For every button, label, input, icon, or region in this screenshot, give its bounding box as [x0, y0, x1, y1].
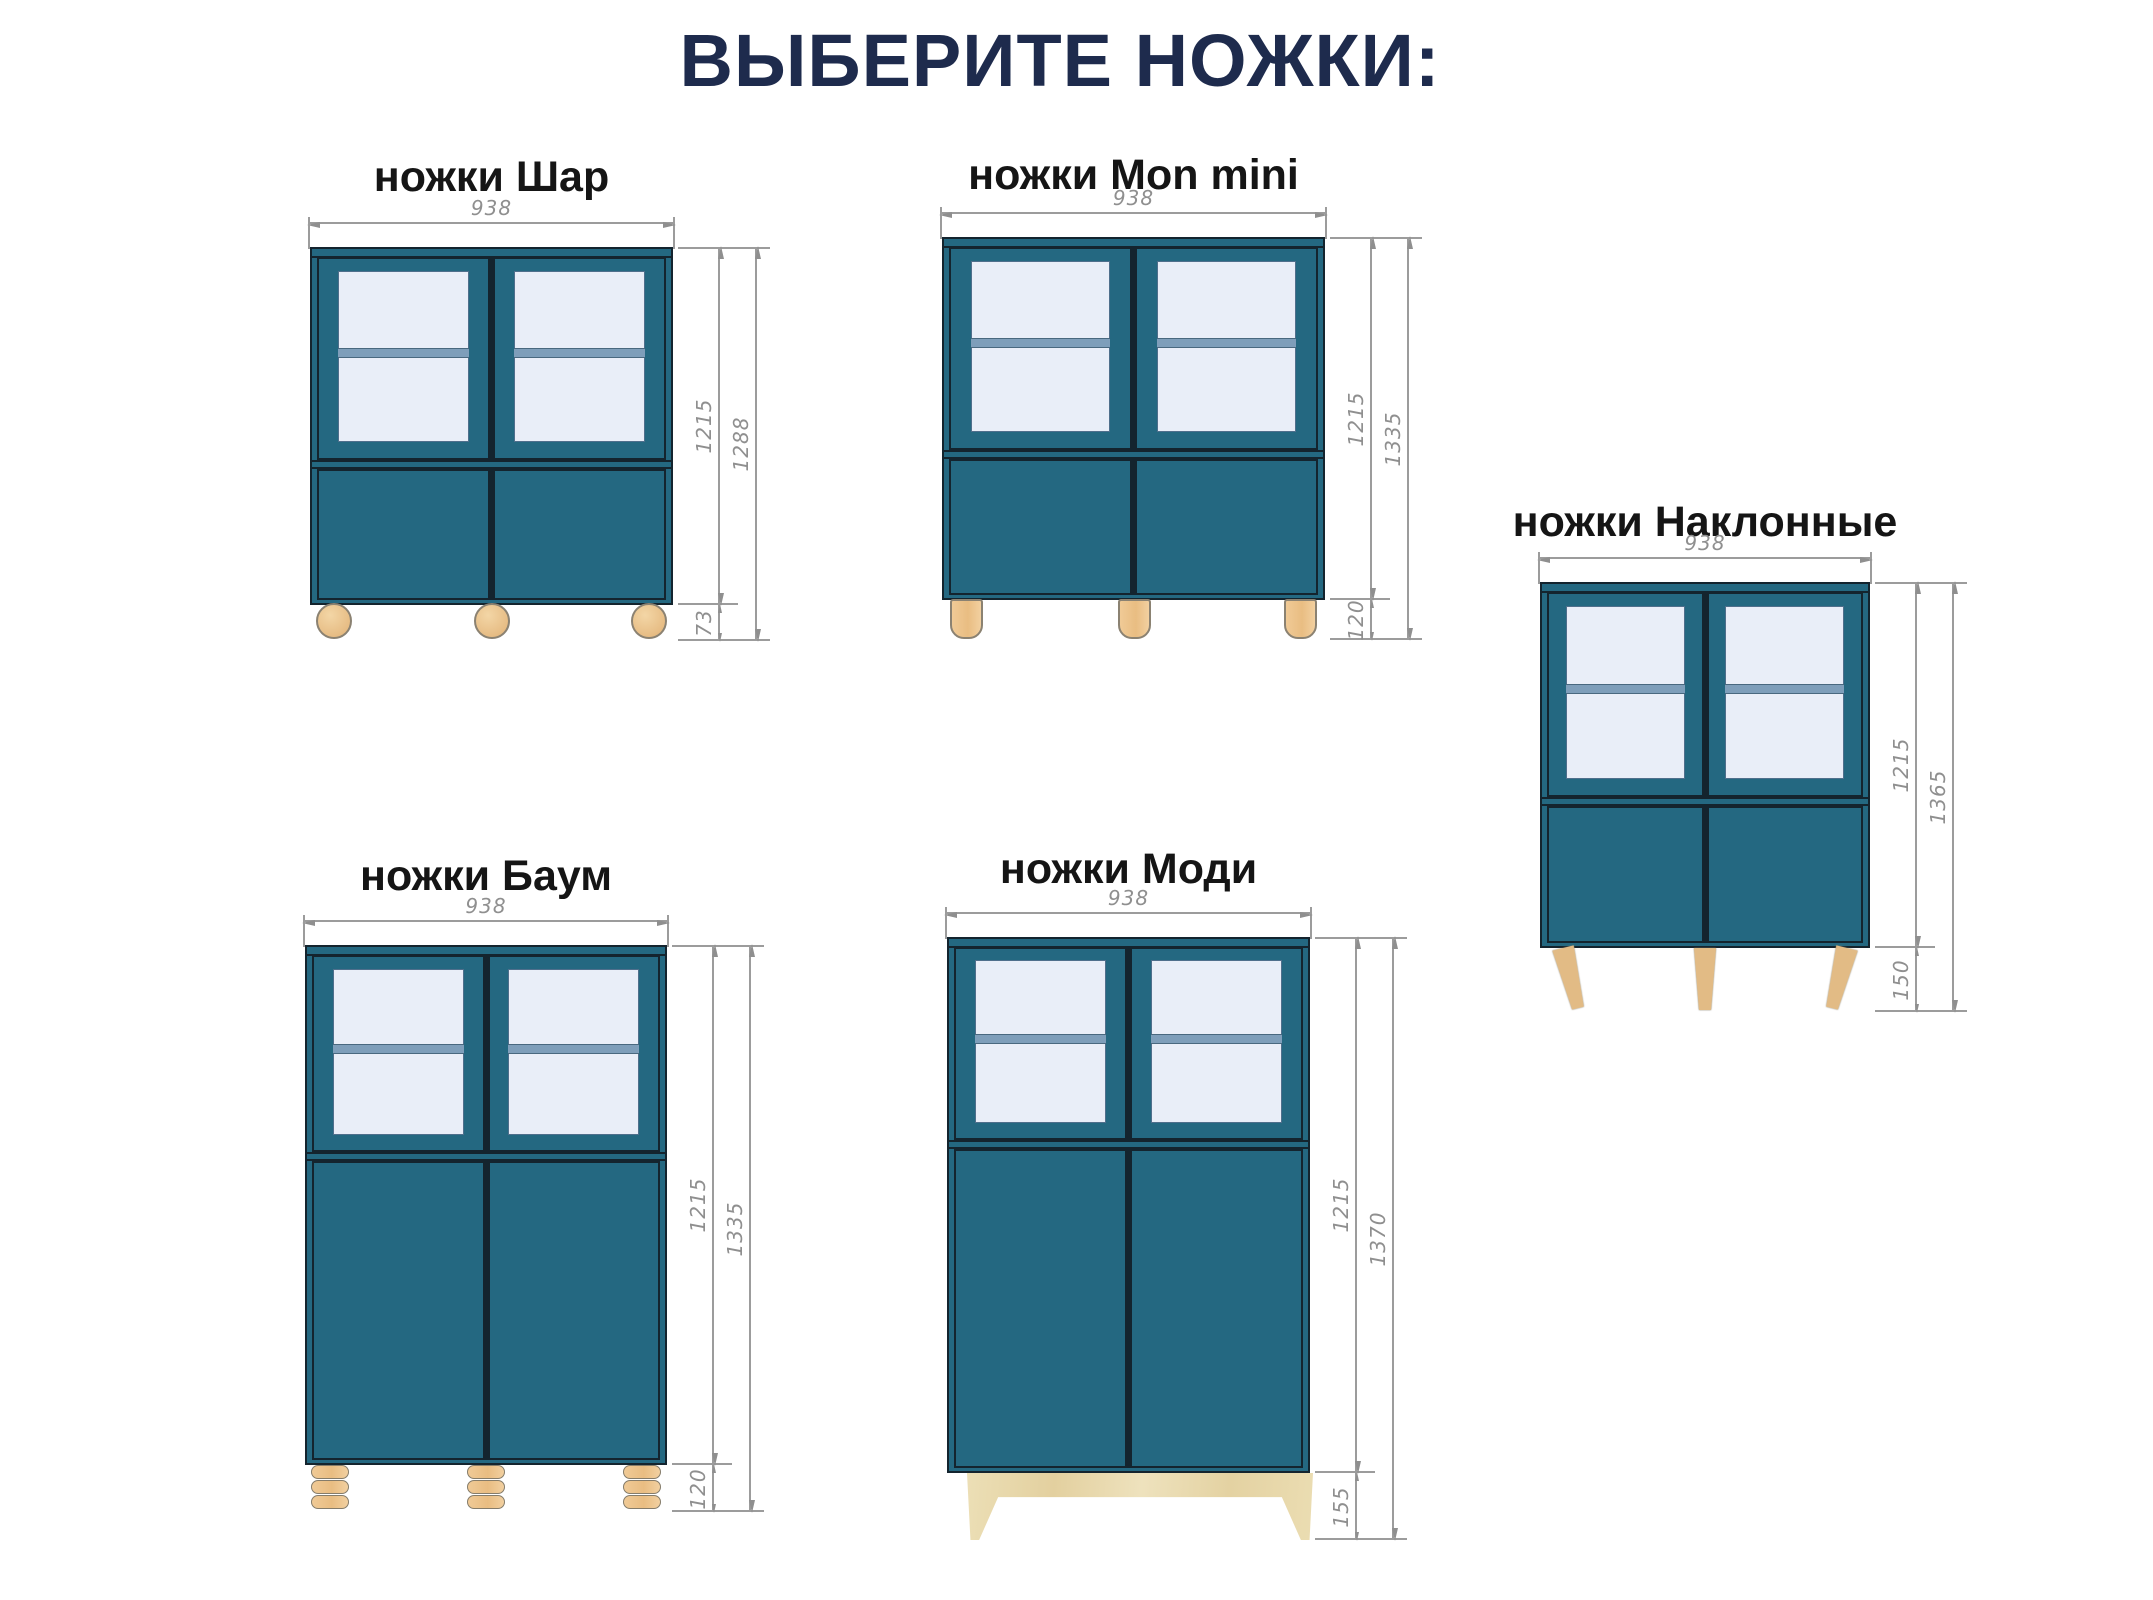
ball-leg [631, 603, 667, 639]
shelf-line [508, 1044, 639, 1054]
extension-line [1315, 1471, 1375, 1473]
glass-door-section [317, 257, 666, 460]
total-height-dimension: 1335 [749, 945, 751, 1512]
glass-door-right [1707, 592, 1864, 797]
legs-plinth [947, 1473, 1310, 1540]
body-height-dimension: 1215 [1915, 582, 1917, 948]
extension-line [1325, 207, 1327, 239]
page-title: ВЫБЕРИТЕ НОЖКИ: [0, 18, 2120, 103]
glass-door-section [949, 247, 1318, 450]
solid-door-section [954, 1149, 1303, 1468]
width-value: 938 [1108, 886, 1149, 910]
glass-pane [1725, 606, 1844, 779]
variant-panel-modi[interactable]: ножки Моди 938 1215 1370 155 [947, 937, 1310, 1473]
shelf-line [1151, 1034, 1283, 1044]
width-value: 938 [1113, 186, 1154, 210]
width-value: 938 [471, 196, 512, 220]
solid-door-left [317, 469, 490, 600]
solid-door-section [949, 459, 1318, 595]
glass-door-section [954, 947, 1303, 1140]
leg-height-dimension: 150 [1915, 948, 1917, 1012]
shelf-line [1157, 338, 1297, 348]
body-height-dimension: 1215 [712, 945, 714, 1465]
shelf-line [514, 348, 646, 358]
glass-door-right [1135, 247, 1318, 450]
width-dimension: 938 [1538, 557, 1872, 559]
solid-door-section [312, 1161, 660, 1460]
shelf-line [1566, 684, 1685, 694]
extension-line [303, 915, 305, 947]
glass-door-right [493, 257, 666, 460]
extension-line [940, 207, 942, 239]
extension-line [1310, 907, 1312, 939]
shelf-line [975, 1034, 1107, 1044]
width-value: 938 [465, 894, 506, 918]
cabinet-graphic [942, 237, 1325, 600]
solid-door-left [1547, 806, 1704, 943]
middle-divider [944, 450, 1323, 459]
glass-door-section [312, 955, 660, 1152]
total-height-dimension: 1288 [755, 247, 757, 641]
glass-pane [514, 271, 646, 443]
legs-ball [310, 605, 673, 641]
variant-label: ножки Шар [374, 153, 609, 202]
middle-divider [1542, 797, 1868, 806]
cabinet-graphic [1540, 582, 1870, 948]
extension-line [673, 217, 675, 249]
leg-height-dimension: 155 [1355, 1473, 1357, 1540]
cylinder-leg [1284, 599, 1317, 639]
middle-divider [307, 1152, 665, 1161]
variant-panel-baum[interactable]: ножки Баум 938 1215 1335 120 [305, 945, 667, 1465]
stacked-disc-leg [311, 1465, 349, 1509]
cabinet-graphic [305, 945, 667, 1465]
leg-height-dimension: 120 [712, 1465, 714, 1512]
glass-pane [975, 960, 1107, 1123]
leg-height-dimension: 120 [1370, 600, 1372, 640]
solid-door-right [1135, 459, 1318, 595]
glass-pane [333, 969, 464, 1135]
cylinder-leg [950, 599, 983, 639]
extension-line [672, 1463, 732, 1465]
extension-line [667, 915, 669, 947]
legs-slanted [1540, 948, 1870, 1012]
solid-door-right [1130, 1149, 1303, 1468]
leg-height-dimension: 73 [718, 605, 720, 641]
body-height-dimension: 1215 [1370, 237, 1372, 600]
solid-door-right [1707, 806, 1864, 943]
shelf-line [333, 1044, 464, 1054]
glass-door-section [1547, 592, 1863, 797]
variant-panel-mon-mini[interactable]: ножки Mon mini 938 1215 1335 120 [942, 237, 1325, 600]
cylinder-leg [1118, 599, 1151, 639]
glass-pane [1151, 960, 1283, 1123]
legs-stacked-discs [305, 1465, 667, 1512]
cabinet-graphic [947, 937, 1310, 1473]
solid-door-left [312, 1161, 485, 1460]
glass-door-left [312, 955, 485, 1152]
solid-door-right [488, 1161, 661, 1460]
slanted-leg [1694, 948, 1716, 1010]
cabinet-graphic [310, 247, 673, 605]
middle-divider [949, 1140, 1308, 1149]
glass-door-left [317, 257, 490, 460]
solid-door-right [493, 469, 666, 600]
solid-door-section [317, 469, 666, 600]
ball-leg [474, 603, 510, 639]
width-dimension: 938 [308, 222, 675, 224]
glass-pane [1157, 261, 1297, 432]
extension-line [945, 907, 947, 939]
extension-line [1870, 552, 1872, 584]
glass-door-left [954, 947, 1127, 1140]
slanted-leg [1552, 945, 1588, 1010]
shelf-line [1725, 684, 1844, 694]
extension-line [678, 603, 738, 605]
glass-pane [508, 969, 639, 1135]
ball-leg [316, 603, 352, 639]
width-dimension: 938 [940, 212, 1327, 214]
glass-pane [971, 261, 1111, 432]
solid-door-left [949, 459, 1132, 595]
variant-panel-naklonnye[interactable]: ножки Наклонные 938 1215 1365 150 [1540, 582, 1870, 948]
solid-door-left [954, 1149, 1127, 1468]
solid-door-section [1547, 806, 1863, 943]
width-dimension: 938 [945, 912, 1312, 914]
extension-line [308, 217, 310, 249]
extension-line [1538, 552, 1540, 584]
body-height-dimension: 1215 [718, 247, 720, 605]
width-value: 938 [1684, 531, 1725, 555]
glass-door-left [1547, 592, 1704, 797]
glass-door-left [949, 247, 1132, 450]
middle-divider [312, 460, 671, 469]
extension-line [1875, 946, 1935, 948]
stacked-disc-leg [467, 1465, 505, 1509]
glass-door-right [488, 955, 661, 1152]
body-height-dimension: 1215 [1355, 937, 1357, 1473]
total-height-dimension: 1370 [1392, 937, 1394, 1540]
shelf-line [971, 338, 1111, 348]
variant-panel-shar[interactable]: ножки Шар 938 1215 1288 73 [310, 247, 673, 605]
total-height-dimension: 1365 [1952, 582, 1954, 1012]
total-height-dimension: 1335 [1407, 237, 1409, 640]
glass-door-right [1130, 947, 1303, 1140]
width-dimension: 938 [303, 920, 669, 922]
stacked-disc-leg [623, 1465, 661, 1509]
glass-pane [338, 271, 470, 443]
plinth-base [967, 1473, 1313, 1540]
legs-cylinder [942, 600, 1325, 640]
slanted-leg [1821, 945, 1857, 1010]
glass-pane [1566, 606, 1685, 779]
shelf-line [338, 348, 470, 358]
